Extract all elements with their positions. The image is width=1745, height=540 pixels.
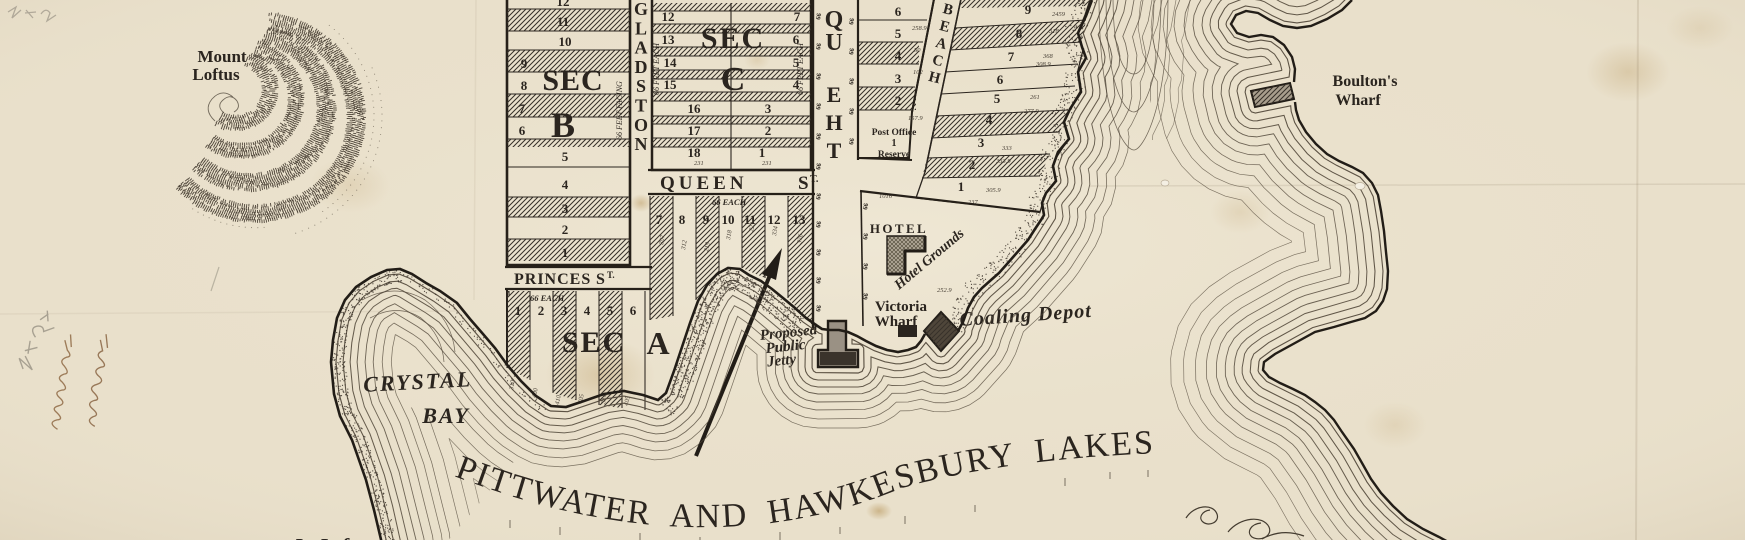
svg-text:66 EACH: 66 EACH (712, 197, 747, 207)
svg-text:A: A (646, 325, 669, 361)
svg-text:Ld Loftus: Ld Loftus (293, 535, 373, 540)
svg-text:Boulton's: Boulton's (1333, 73, 1398, 90)
svg-text:15: 15 (664, 77, 678, 92)
svg-text:BAY: BAY (421, 403, 470, 428)
svg-text:305.9: 305.9 (985, 187, 1001, 194)
svg-text:U: U (825, 30, 842, 56)
svg-text:157.9: 157.9 (908, 115, 923, 122)
svg-text:3: 3 (895, 71, 902, 86)
svg-text:1: 1 (515, 303, 522, 318)
svg-text:QUEEN: QUEEN (660, 173, 748, 194)
svg-text:368: 368 (1042, 53, 1054, 60)
svg-text:S: S (798, 173, 809, 194)
svg-text:D: D (635, 57, 648, 77)
svg-text:13: 13 (793, 212, 807, 227)
svg-text:12: 12 (768, 212, 781, 227)
svg-text:3: 3 (978, 135, 985, 150)
svg-text:3: 3 (765, 101, 772, 116)
svg-text:18: 18 (688, 145, 702, 160)
svg-text:17: 17 (688, 123, 702, 138)
svg-text:2: 2 (562, 222, 569, 237)
svg-text:L: L (635, 18, 647, 38)
svg-text:1: 1 (958, 179, 965, 194)
svg-text:252.9: 252.9 (937, 287, 952, 294)
svg-text:308.9: 308.9 (1035, 61, 1051, 68)
svg-text:T.: T. (810, 174, 819, 185)
svg-text:9: 9 (521, 56, 528, 71)
svg-text:S: S (636, 76, 646, 96)
svg-text:7: 7 (794, 9, 801, 24)
svg-text:SEC: SEC (542, 64, 603, 97)
svg-text:9: 9 (703, 212, 710, 227)
svg-text:5: 5 (607, 303, 614, 318)
svg-text:8: 8 (521, 78, 528, 93)
svg-text:231: 231 (694, 160, 704, 167)
svg-text:2: 2 (538, 303, 545, 318)
svg-text:14: 14 (664, 55, 678, 70)
svg-text:H: H (825, 110, 842, 135)
svg-text:50: 50 (914, 47, 921, 54)
svg-text:318: 318 (1048, 28, 1060, 35)
svg-text:16: 16 (688, 101, 702, 116)
svg-text:7: 7 (519, 101, 526, 116)
svg-text:6: 6 (895, 4, 902, 19)
svg-text:11: 11 (557, 14, 569, 29)
svg-text:7: 7 (656, 212, 663, 227)
svg-text:3: 3 (561, 303, 568, 318)
svg-text:Loftus: Loftus (192, 65, 240, 84)
svg-text:G: G (634, 0, 648, 19)
svg-text:Victoria: Victoria (875, 299, 927, 315)
svg-text:PRINCES: PRINCES (514, 271, 591, 288)
svg-text:333.9: 333.9 (995, 158, 1011, 165)
svg-text:66 FEET EACH: 66 FEET EACH (796, 42, 805, 95)
svg-text:3: 3 (562, 201, 569, 216)
svg-text:T.: T. (607, 270, 615, 280)
svg-text:6: 6 (997, 72, 1004, 87)
svg-text:2: 2 (895, 93, 902, 108)
svg-text:66 FEET FACING: 66 FEET FACING (615, 81, 624, 140)
svg-text:Post Office: Post Office (872, 128, 917, 138)
svg-text:4: 4 (986, 112, 993, 127)
svg-text:8: 8 (679, 212, 686, 227)
svg-text:T: T (635, 96, 647, 116)
svg-text:2: 2 (765, 123, 772, 138)
svg-text:6: 6 (630, 303, 637, 318)
svg-text:5: 5 (562, 149, 569, 164)
svg-text:B: B (551, 105, 575, 145)
svg-text:4: 4 (895, 48, 902, 63)
svg-text:SEC: SEC (562, 326, 626, 359)
svg-text:T: T (827, 138, 842, 163)
svg-text:1: 1 (892, 138, 897, 149)
svg-text:333: 333 (1001, 145, 1013, 152)
svg-text:277.9: 277.9 (1024, 108, 1039, 115)
svg-text:Mount: Mount (197, 47, 246, 66)
svg-text:231: 231 (762, 160, 772, 167)
svg-text:4: 4 (562, 177, 569, 192)
svg-text:9: 9 (1025, 2, 1032, 17)
svg-text:A: A (635, 38, 648, 58)
svg-text:6: 6 (519, 123, 526, 138)
svg-text:66 FEET EACH: 66 FEET EACH (652, 42, 661, 95)
svg-text:Jetty: Jetty (765, 352, 797, 371)
svg-text:O: O (634, 115, 648, 135)
svg-text:N: N (635, 134, 648, 154)
svg-text:2: 2 (969, 157, 976, 172)
svg-text:261: 261 (1030, 94, 1040, 101)
svg-text:258.9: 258.9 (912, 25, 927, 32)
svg-text:C: C (721, 61, 746, 98)
svg-text:1: 1 (562, 245, 569, 260)
svg-text:1: 1 (759, 145, 766, 160)
svg-text:HOTEL: HOTEL (870, 221, 928, 236)
svg-text:12: 12 (662, 9, 675, 24)
svg-text:S: S (596, 271, 605, 288)
svg-text:8: 8 (1016, 26, 1023, 41)
svg-text:13: 13 (662, 32, 676, 47)
svg-text:2459: 2459 (1052, 11, 1066, 18)
svg-text:12: 12 (557, 0, 570, 9)
svg-text:E: E (827, 82, 842, 107)
svg-text:Wharf: Wharf (1335, 92, 1381, 109)
svg-text:4: 4 (584, 303, 591, 318)
svg-text:5: 5 (895, 26, 902, 41)
svg-text:7: 7 (1008, 49, 1015, 64)
svg-text:10: 10 (722, 212, 735, 227)
svg-text:10: 10 (559, 34, 572, 49)
svg-text:SEC: SEC (701, 22, 765, 55)
svg-text:5: 5 (994, 91, 1001, 106)
